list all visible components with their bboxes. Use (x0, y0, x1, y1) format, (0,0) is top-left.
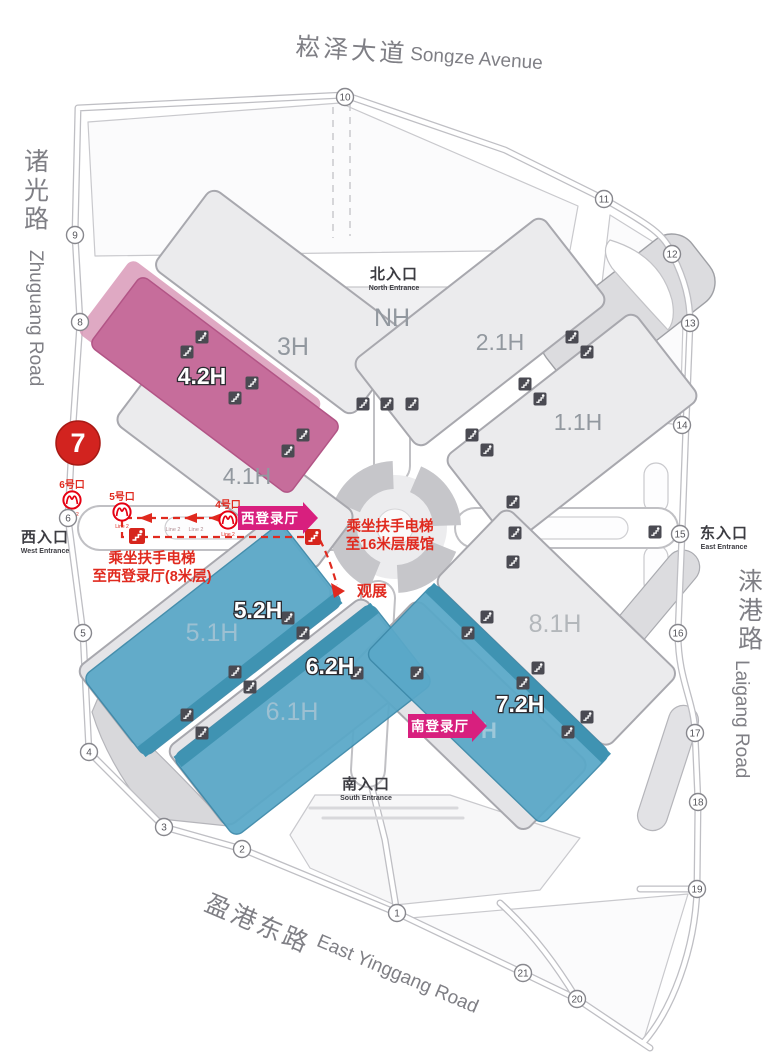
escalator-icon (581, 346, 594, 359)
north-entrance-zh: 北入口 (370, 266, 418, 283)
escalator-icon (297, 627, 310, 640)
gate-number: 20 (571, 995, 583, 1006)
gate-number: 15 (674, 530, 686, 541)
gate-number: 1 (394, 909, 400, 920)
corridor-line-mark-1: Line 2 (166, 527, 181, 533)
corridor-line-mark-2: Line 2 (189, 527, 204, 533)
metro-exit-4-label: 4号口 (215, 499, 241, 511)
escalator-icon-red-center (305, 529, 321, 545)
gate-number: 5 (80, 629, 86, 640)
metro-icon (113, 503, 130, 520)
metro-icon (63, 491, 80, 508)
gate-marker-3: 3 (156, 819, 173, 836)
to-west-hall-line2: 至西登录厅(8米层) (92, 567, 211, 585)
gate-7-highlight-badge: 7 (56, 421, 100, 465)
escalator-icon (581, 711, 594, 724)
gate-number: 21 (517, 969, 529, 980)
escalator-icon (509, 527, 522, 540)
gate-marker-6: 6 (60, 510, 77, 527)
escalator-icon (466, 429, 479, 442)
gate-number: 14 (676, 421, 688, 432)
escalator-icon (246, 377, 259, 390)
escalator-icon (562, 726, 575, 739)
road-left-en: Zhuguang Road (25, 250, 46, 386)
escalator-icon (517, 677, 530, 690)
escalator-icon (481, 444, 494, 457)
west-entrance-zh: 西入口 (21, 529, 69, 546)
north-entrance-en: North Entrance (369, 285, 420, 292)
hall-8-1h-label: 8.1H (529, 610, 582, 638)
east-entrance-zh: 东入口 (700, 524, 748, 542)
to-west-hall-line1: 乘坐扶手电梯 (108, 549, 196, 567)
escalator-icon (196, 727, 209, 740)
hall-7-2h-label: 7.2H (496, 691, 545, 717)
metro-exit-5-line: Line 2 (115, 524, 129, 530)
south-entrance-zh: 南入口 (342, 775, 390, 793)
escalator-icon (229, 666, 242, 679)
viewing-label: 观展 (357, 583, 387, 600)
to-16m-line2: 至16米层展馆 (346, 535, 435, 553)
gate-number: 2 (239, 845, 245, 856)
east-pill-upper (644, 463, 668, 513)
escalator-icon (406, 398, 419, 411)
escalator-icon (649, 526, 662, 539)
metro-exit-6-label: 6号口 (59, 479, 85, 491)
metro-icon (219, 511, 236, 528)
gate-number: 17 (689, 729, 701, 740)
gate-number: 19 (691, 885, 703, 896)
gate-number: 12 (666, 250, 678, 261)
escalator-icon (357, 398, 370, 411)
escalator-icon (532, 662, 545, 675)
gate-number: 13 (684, 319, 696, 330)
gate-number: 8 (77, 318, 83, 329)
gate-marker-13: 13 (682, 315, 699, 332)
gate-number: 18 (692, 798, 704, 809)
gate-marker-17: 17 (687, 725, 704, 742)
escalator-icon (297, 429, 310, 442)
road-right-zh: 涞港路 (738, 568, 766, 654)
escalator-icon (282, 445, 295, 458)
metro-exit-5-label: 5号口 (109, 491, 135, 503)
gate-marker-19: 19 (689, 881, 706, 898)
west-registration-label: 西登录厅 (241, 510, 299, 526)
hall-6-1h-label: 6.1H (266, 698, 319, 726)
escalator-icon (534, 393, 547, 406)
map-canvas: 6号口 Line 2 5号口 Line 2 4号口 Line 2 Line 2 … (0, 0, 768, 1061)
gate-marker-20: 20 (569, 991, 586, 1008)
hall-5-1h-label: 5.1H (186, 619, 239, 647)
gate-number: 4 (86, 748, 92, 759)
hall-5-2h-label: 5.2H (234, 597, 283, 623)
gate-marker-2: 2 (234, 841, 251, 858)
gate-marker-1: 1 (389, 905, 406, 922)
gate-marker-18: 18 (690, 794, 707, 811)
escalator-icon (566, 331, 579, 344)
gate-marker-10: 10 (337, 89, 354, 106)
metro-exit-4-line: Line 2 (221, 532, 235, 538)
south-registration-label: 南登录厅 (411, 718, 469, 734)
escalator-icon (519, 378, 532, 391)
escalator-icon (196, 331, 209, 344)
gate-number: 10 (339, 93, 351, 104)
gate-marker-15: 15 (672, 526, 689, 543)
hall-4-2h-label: 4.2H (178, 363, 227, 389)
hall-4-1h-label: 4.1H (223, 463, 272, 489)
west-entrance-en: West Entrance (21, 548, 70, 555)
hall-1-1h-label: 1.1H (554, 409, 603, 435)
escalator-icon (462, 627, 475, 640)
escalator-icon (229, 392, 242, 405)
gate-marker-16: 16 (670, 625, 687, 642)
hall-2-1h-label: 2.1H (476, 329, 525, 355)
gate-marker-12: 12 (664, 246, 681, 263)
gate-marker-9: 9 (67, 227, 84, 244)
gate-marker-4: 4 (81, 744, 98, 761)
gate-number: 16 (672, 629, 684, 640)
escalator-icon (282, 612, 295, 625)
south-entrance-en: South Entrance (340, 795, 392, 802)
hall-nh-label: NH (374, 304, 410, 332)
gate-number: 7 (70, 428, 85, 458)
escalator-icon (411, 667, 424, 680)
escalator-icon (244, 681, 257, 694)
hall-7-1h-partial-label: H (481, 718, 497, 743)
road-left-zh: 诸光路 (24, 148, 52, 234)
gate-number: 11 (599, 195, 610, 206)
escalator-icon (381, 398, 394, 411)
escalator-icon (507, 556, 520, 569)
escalator-icon (507, 496, 520, 509)
escalator-icon (481, 611, 494, 624)
escalator-icon (181, 709, 194, 722)
escalator-icon-red-west (129, 528, 145, 544)
gate-number: 6 (65, 514, 71, 525)
gate-marker-11: 11 (596, 191, 613, 208)
east-entrance-en: East Entrance (701, 544, 748, 551)
escalator-icon (181, 346, 194, 359)
gate-marker-14: 14 (674, 417, 691, 434)
gate-marker-21: 21 (515, 965, 532, 982)
hall-6-2h-label: 6.2H (306, 653, 355, 679)
to-16m-line1: 乘坐扶手电梯 (346, 517, 434, 535)
venue-map: 6号口 Line 2 5号口 Line 2 4号口 Line 2 Line 2 … (0, 0, 768, 1061)
gate-marker-8: 8 (72, 314, 89, 331)
gate-number: 9 (72, 231, 78, 242)
gate-number: 3 (161, 823, 167, 834)
road-right-en: Laigang Road (731, 660, 752, 778)
gate-marker-5: 5 (75, 625, 92, 642)
hall-3h-label: 3H (277, 333, 309, 361)
